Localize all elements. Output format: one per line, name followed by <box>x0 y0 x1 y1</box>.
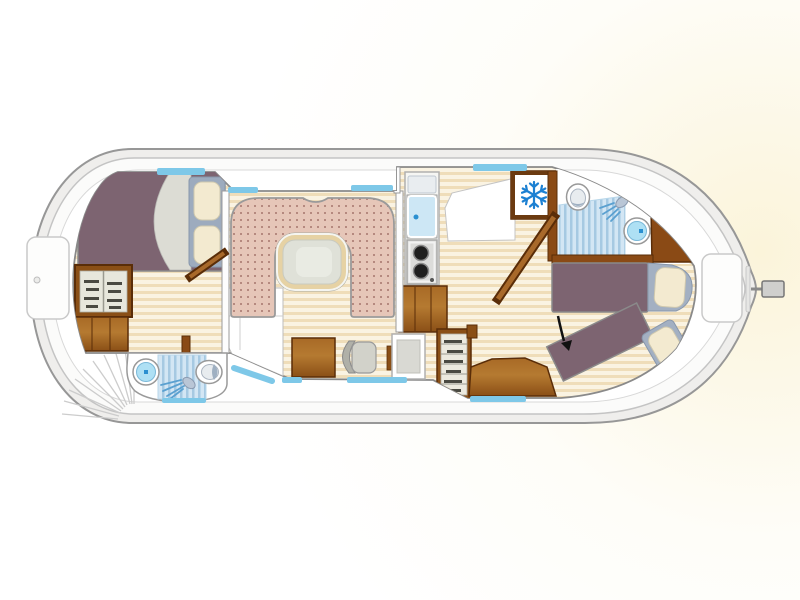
front-shower-tray <box>133 359 159 385</box>
salon-table <box>276 233 348 291</box>
aft-washbasin <box>624 218 650 244</box>
drain-board <box>408 176 436 193</box>
aft-bed-pillow <box>654 267 687 308</box>
desk-chair-seat <box>352 342 376 373</box>
bathroom-door-post <box>182 336 190 354</box>
front-shower-window <box>162 398 206 403</box>
galley-cabinet <box>399 286 447 332</box>
floorplan-canvas <box>0 0 800 600</box>
wall-galley <box>396 191 403 332</box>
front-wardrobe <box>75 265 132 317</box>
bow-locker-latch <box>34 277 40 283</box>
desk <box>292 338 335 377</box>
front-pillow-1 <box>194 182 220 220</box>
front-toilet <box>196 361 222 384</box>
side-table <box>392 334 425 379</box>
window-galley-top <box>473 164 527 171</box>
aft-wardrobe-knob <box>467 325 477 338</box>
stern-trim <box>746 266 750 312</box>
window-bottom-1 <box>282 377 302 383</box>
window-salon-right <box>351 185 393 191</box>
galley-stove <box>407 240 437 284</box>
window-bottom-2 <box>347 377 407 383</box>
rudder <box>762 281 784 297</box>
wall-front-cabin <box>222 191 229 353</box>
window-bottom-aft <box>470 396 526 402</box>
front-bathroom <box>127 353 227 403</box>
galley-sink <box>408 196 436 237</box>
window-bow-top <box>157 168 205 175</box>
aft-toilet <box>567 184 590 210</box>
sink-drain <box>414 215 419 220</box>
window-salon-left <box>228 187 258 193</box>
houseboat-floorplan <box>0 0 800 600</box>
stern-locker <box>702 254 742 322</box>
bow-locker <box>27 237 69 319</box>
